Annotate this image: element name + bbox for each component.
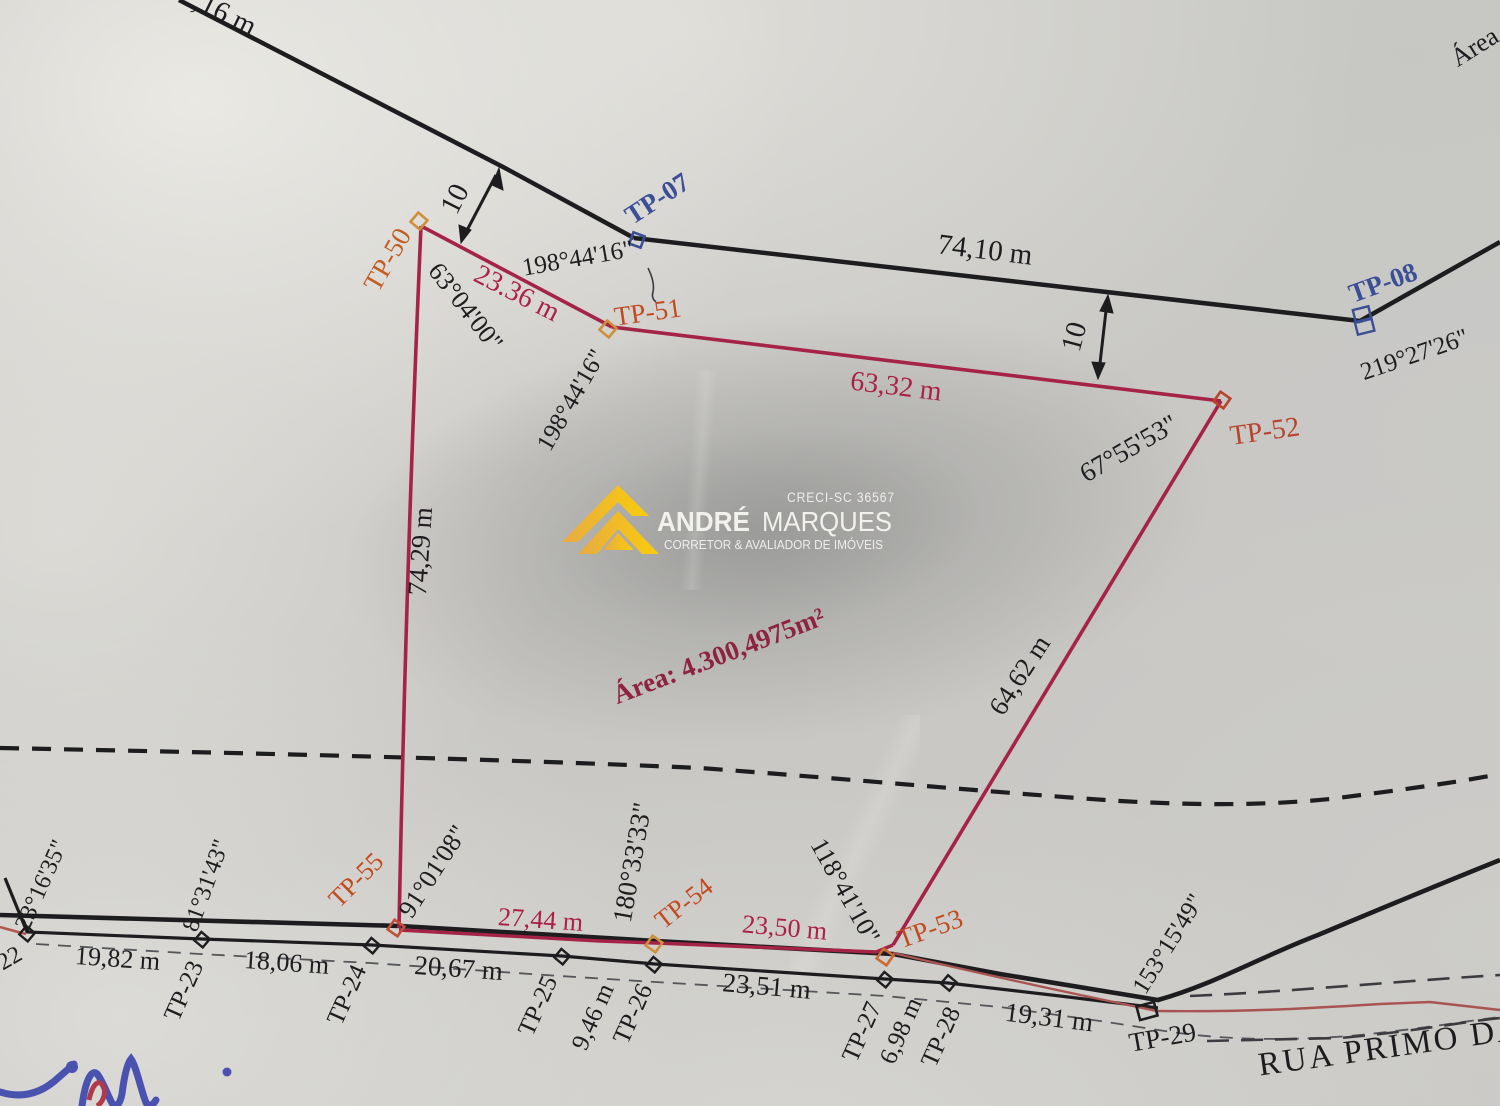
svg-text:27,44 m: 27,44 m [497, 902, 584, 937]
svg-text:23°16'35": 23°16'35" [10, 836, 73, 934]
svg-text:198°44'16": 198°44'16" [532, 345, 611, 456]
svg-text:TP-55: TP-55 [323, 847, 389, 913]
svg-text:153°15'49": 153°15'49" [1127, 889, 1209, 998]
svg-text:23,50 m: 23,50 m [741, 909, 828, 945]
svg-text:TP-53: TP-53 [893, 903, 967, 954]
svg-text:64,62 m: 64,62 m [983, 630, 1056, 721]
svg-text:TP-29: TP-29 [1127, 1017, 1199, 1058]
svg-text:CRECI-SC 36567: CRECI-SC 36567 [787, 490, 895, 505]
svg-text:ANDRÉMARQUES: ANDRÉMARQUES [657, 506, 892, 537]
svg-text:CORRETOR & AVALIADOR DE IMÓVEI: CORRETOR & AVALIADOR DE IMÓVEIS [664, 537, 883, 552]
svg-text:TP-50: TP-50 [357, 223, 417, 296]
svg-text:P-22: P-22 [0, 941, 27, 986]
svg-text:TP-23: TP-23 [159, 957, 209, 1025]
svg-text:198°44'16": 198°44'16" [520, 236, 635, 282]
svg-text:9,46 m: 9,46 m [567, 979, 620, 1054]
svg-text:RUA PRIMO DA: RUA PRIMO DA [1256, 1011, 1500, 1084]
svg-text:TP-25: TP-25 [513, 972, 563, 1040]
svg-text:180°33'33": 180°33'33" [607, 800, 658, 925]
svg-text:Área: Área [1445, 21, 1500, 73]
svg-text:67°55'53": 67°55'53" [1074, 408, 1182, 488]
svg-text:63,32 m: 63,32 m [849, 366, 944, 408]
svg-text:10: 10 [1055, 319, 1093, 355]
svg-text:Área: 4.300,4975m²: Área: 4.300,4975m² [609, 601, 829, 709]
svg-text:20,67 m: 20,67 m [413, 950, 503, 986]
svg-text:23,51 m: 23,51 m [721, 967, 812, 1005]
svg-text:91°01'08": 91°01'08" [392, 820, 473, 923]
svg-text:TP-51: TP-51 [612, 293, 683, 332]
svg-text:TP-24: TP-24 [322, 960, 372, 1029]
svg-text:TP-54: TP-54 [649, 872, 718, 935]
svg-text:74,10 m: 74,10 m [936, 228, 1035, 271]
svg-text:74,29 m: 74,29 m [402, 506, 438, 596]
svg-text:18,06 m: 18,06 m [243, 945, 330, 980]
svg-text:10: 10 [434, 179, 476, 219]
svg-text:TP-08: TP-08 [1345, 256, 1422, 308]
svg-text:TP-52: TP-52 [1228, 411, 1302, 451]
svg-text:TP-07: TP-07 [619, 167, 694, 231]
svg-text:19,31 m: 19,31 m [1003, 997, 1095, 1038]
svg-text:219°27'26": 219°27'26" [1357, 324, 1472, 386]
svg-text:19,82 m: 19,82 m [74, 941, 161, 976]
